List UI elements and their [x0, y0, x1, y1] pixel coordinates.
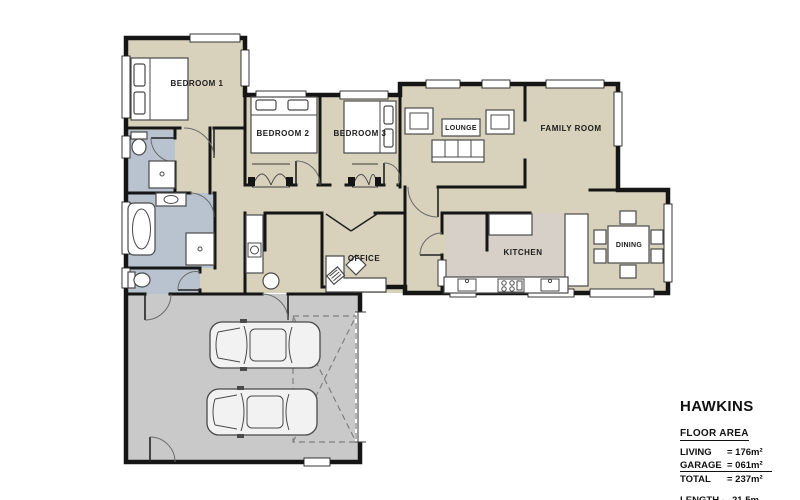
- bathtub-icon: [128, 203, 155, 255]
- car-icon: [210, 319, 320, 371]
- dim-row-length: LENGTH -21.5m: [680, 496, 772, 500]
- laundry-bench: [246, 215, 263, 273]
- window: [590, 289, 654, 297]
- toilet-icon: [131, 132, 147, 155]
- sofa-icon: [432, 140, 484, 162]
- floor-lounge-family: [400, 84, 618, 190]
- window: [190, 34, 240, 42]
- wardrobe-wall: [348, 177, 355, 186]
- window: [614, 92, 622, 146]
- window: [122, 56, 130, 118]
- car-icon: [207, 386, 317, 438]
- floor-plan-page: BEDROOM 1 BEDROOM 2 BEDROOM 3 LOUNGE FAM…: [0, 0, 800, 500]
- floor-area-heading: FLOOR AREA: [680, 428, 749, 441]
- bed-icon: [131, 58, 188, 120]
- armchair-icon: [486, 110, 514, 134]
- plan-title: HAWKINS: [680, 398, 795, 415]
- shower-icon: [186, 233, 214, 265]
- room-label-bedroom2: BEDROOM 2: [257, 129, 310, 138]
- bed-icon: [344, 101, 396, 153]
- window: [241, 50, 249, 86]
- window: [426, 80, 460, 88]
- window: [122, 136, 130, 158]
- wardrobe-wall: [286, 177, 293, 186]
- window: [482, 80, 510, 88]
- room-label-dining: DINING: [616, 242, 643, 249]
- room-label-bedroom1: BEDROOM 1: [171, 79, 224, 88]
- shower-icon: [149, 161, 175, 188]
- water-heater-icon: [263, 273, 279, 289]
- wardrobe-wall: [375, 177, 381, 186]
- wardrobe-wall: [248, 177, 255, 186]
- room-label-kitchen: KITCHEN: [503, 248, 542, 257]
- vanity-icon: [156, 193, 186, 206]
- kitchen-island: [565, 214, 588, 286]
- toilet-icon: [128, 272, 150, 288]
- area-row-garage: GARAGE= 061m²: [680, 461, 772, 473]
- window: [664, 204, 672, 282]
- area-row-living: LIVING= 176m²: [680, 448, 772, 458]
- armchair-icon: [405, 108, 433, 134]
- window: [304, 458, 330, 466]
- room-label-family-room: FAMILY ROOM: [540, 124, 601, 133]
- area-row-total: TOTAL= 237m²: [680, 475, 772, 485]
- window: [340, 91, 388, 99]
- garage-door-opening: [355, 312, 366, 442]
- window: [546, 80, 604, 88]
- room-label-lounge: LOUNGE: [445, 125, 477, 132]
- room-label-bedroom3: BEDROOM 3: [334, 129, 387, 138]
- room-label-office: OFFICE: [348, 254, 380, 263]
- bed-icon: [251, 97, 317, 153]
- legend-panel: HAWKINS FLOOR AREA LIVING= 176m² GARAGE=…: [680, 398, 795, 500]
- pantry-counter: [489, 214, 532, 235]
